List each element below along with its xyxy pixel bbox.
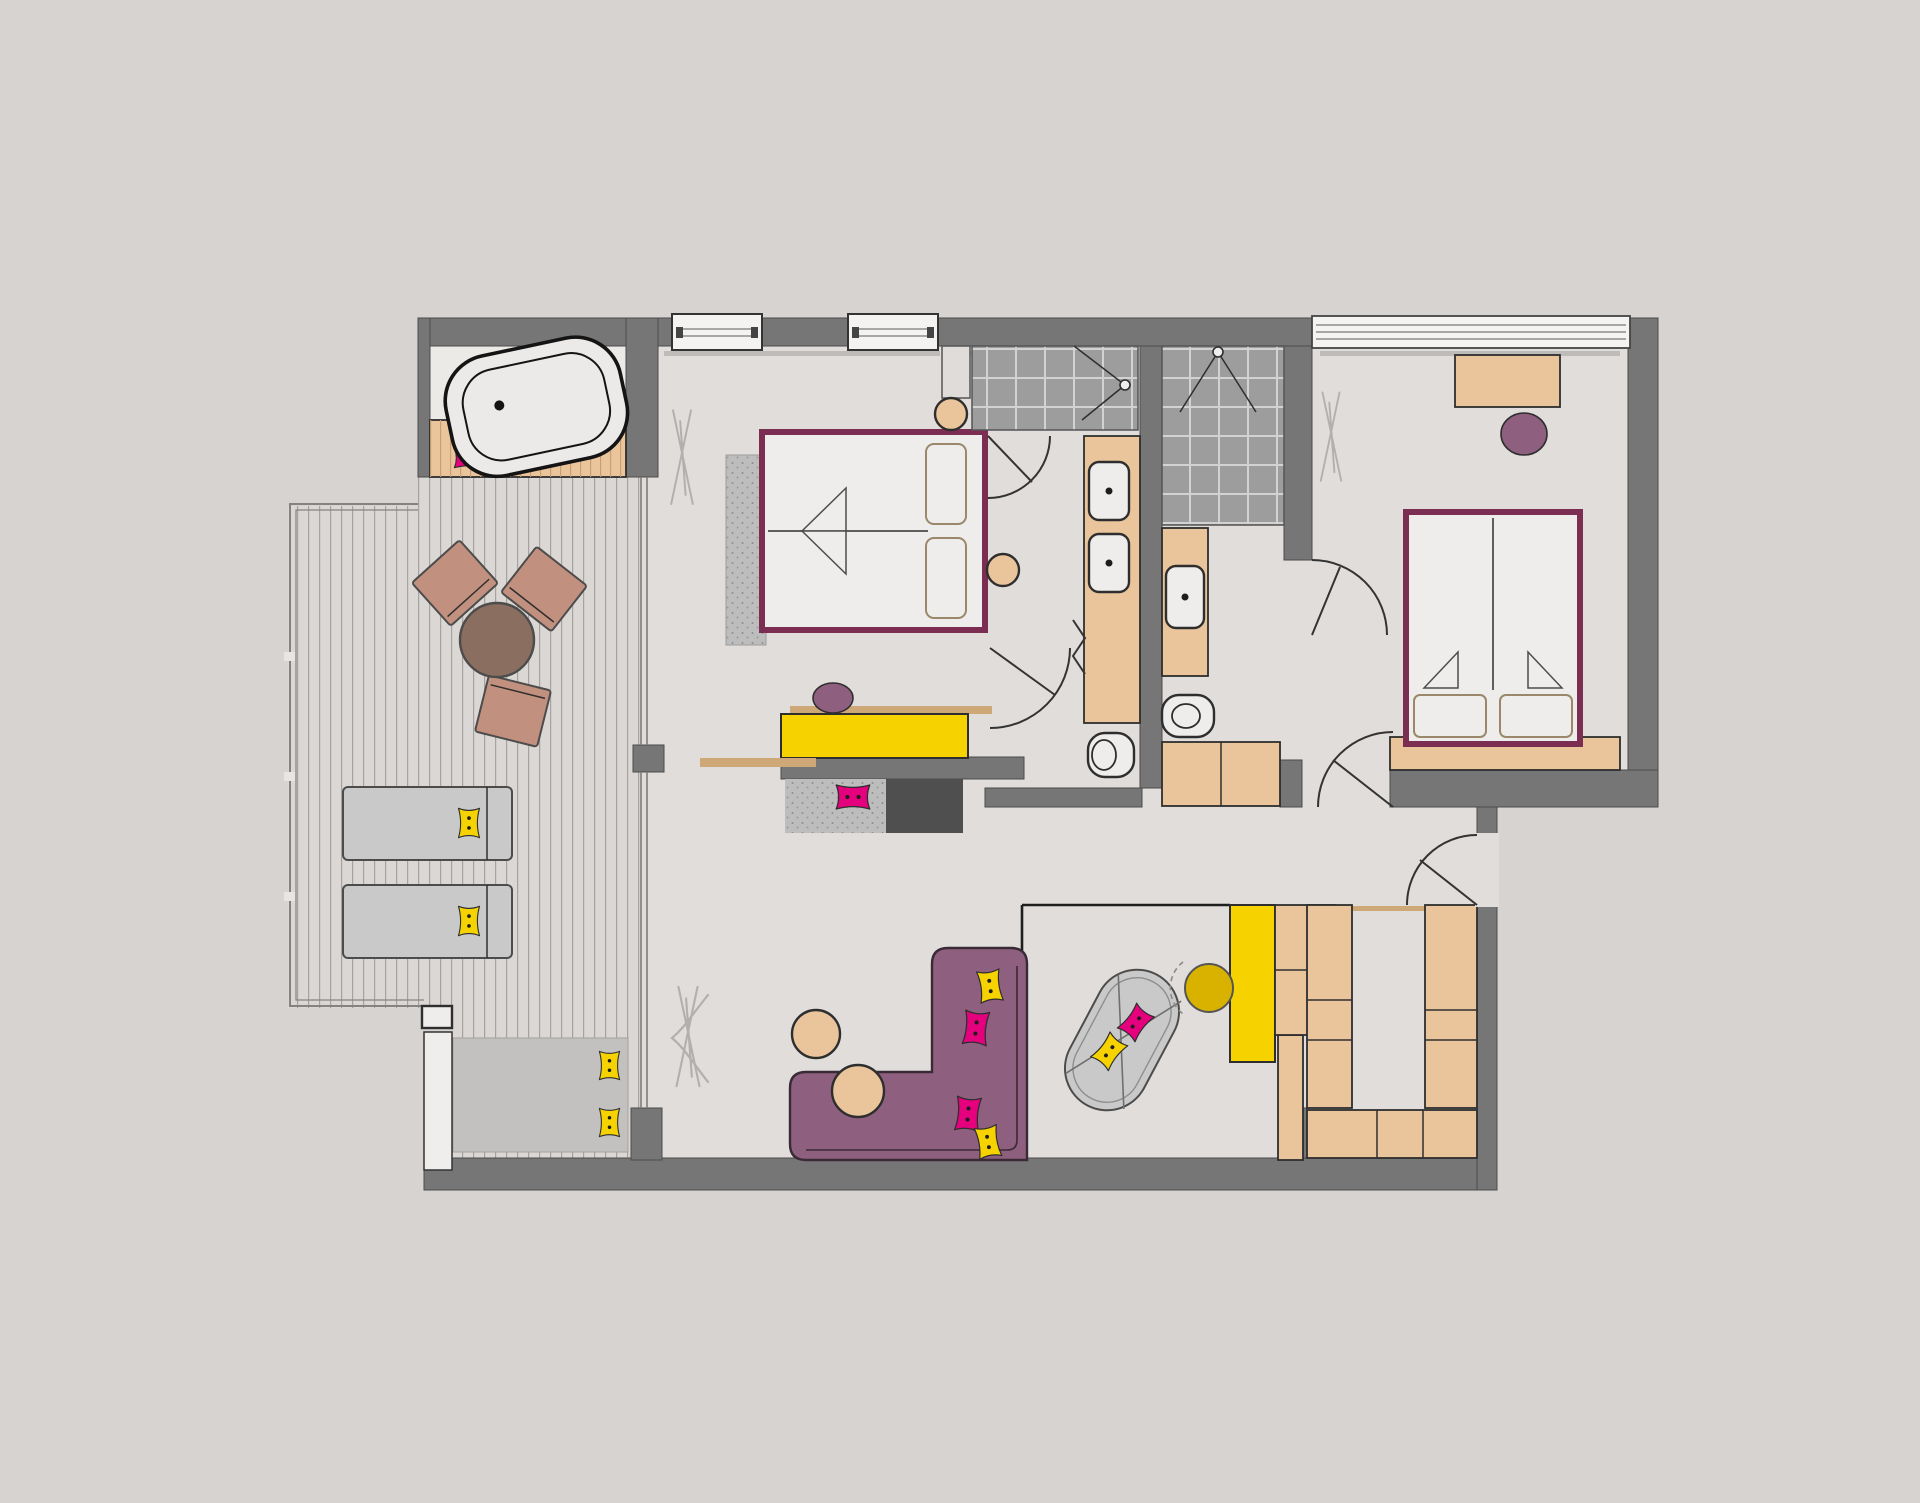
toilet-1 bbox=[1088, 733, 1134, 777]
wall-cabinet bbox=[942, 346, 970, 398]
desk-chair bbox=[1185, 964, 1233, 1012]
faucet-dot bbox=[1106, 560, 1113, 567]
wall-entry-right bbox=[1477, 905, 1497, 1190]
bistro-table bbox=[460, 603, 534, 677]
sofa-cushion-pink bbox=[962, 1010, 989, 1046]
rug-cushion-pink bbox=[836, 785, 870, 809]
window-1 bbox=[672, 314, 762, 350]
railing-post bbox=[284, 772, 295, 781]
glass-pier-upper bbox=[633, 745, 664, 772]
wall-niche-left bbox=[418, 318, 430, 477]
sun-lounger-2 bbox=[343, 885, 512, 958]
yellow-bench bbox=[781, 714, 968, 758]
closet-row bbox=[1307, 1110, 1477, 1158]
entry-threshold bbox=[1475, 833, 1499, 907]
pouf bbox=[832, 1065, 884, 1117]
glass-pier-lower bbox=[631, 1108, 662, 1160]
purple-stool bbox=[813, 683, 853, 713]
wood-board bbox=[700, 758, 816, 767]
desk-console bbox=[1455, 355, 1560, 407]
divider-rug bbox=[785, 779, 886, 833]
side-stool bbox=[987, 554, 1019, 586]
window-2 bbox=[848, 314, 938, 350]
wall-masterbath-bottom bbox=[985, 788, 1142, 807]
faucet-dot bbox=[1106, 488, 1113, 495]
daybed-cushion-yellow bbox=[599, 1051, 619, 1079]
shower-1-tiles bbox=[972, 346, 1138, 430]
bed-pillow bbox=[926, 538, 966, 618]
bed-pillow bbox=[1414, 695, 1486, 737]
toilet-2 bbox=[1162, 695, 1214, 737]
pouf bbox=[792, 1010, 840, 1058]
wall-hall-stub bbox=[1280, 760, 1302, 807]
wall-bottom bbox=[424, 1158, 1497, 1190]
floor-plan-svg: Hotel suite floor plan – top view (no te… bbox=[0, 0, 1920, 1503]
media-unit bbox=[886, 779, 963, 833]
wardrobe-column-left bbox=[1307, 905, 1352, 1108]
twin-bed bbox=[1406, 512, 1580, 744]
bed-pillow bbox=[926, 444, 966, 524]
railing-post bbox=[284, 652, 295, 661]
faucet-dot bbox=[1182, 594, 1189, 601]
wall-entry-top bbox=[1477, 807, 1497, 835]
study-desk bbox=[1230, 905, 1275, 1062]
terrace-planter bbox=[424, 1032, 452, 1170]
shower-1-hinge bbox=[1120, 380, 1130, 390]
lounger-cushion-yellow bbox=[459, 808, 480, 837]
double-bed bbox=[762, 432, 985, 630]
terrace-step bbox=[422, 1006, 452, 1028]
wardrobe-column-right bbox=[1425, 905, 1477, 1108]
railing-post bbox=[284, 892, 295, 901]
bed-pillow bbox=[1500, 695, 1572, 737]
window-band-bedroom2 bbox=[1312, 316, 1630, 348]
wall-bath-divider bbox=[1140, 346, 1162, 788]
floor-plan-stage: Hotel suite floor plan – top view (no te… bbox=[0, 0, 1920, 1503]
wall-bedroom2-bottom bbox=[1390, 770, 1658, 807]
sofa-cushion-pink bbox=[955, 1096, 982, 1132]
desk-stool-purple bbox=[1501, 413, 1547, 455]
side-cabinet bbox=[1278, 1035, 1303, 1160]
wall-divider-stub bbox=[781, 757, 1024, 779]
wall-right bbox=[1628, 318, 1658, 807]
sun-lounger-1 bbox=[343, 787, 512, 860]
side-stool bbox=[935, 398, 967, 430]
exterior-cutout bbox=[1497, 806, 1682, 1170]
shower-2-hinge bbox=[1213, 347, 1223, 357]
shower-2-tiles bbox=[1162, 346, 1284, 525]
curtain-track-master bbox=[664, 351, 940, 356]
lounger-cushion-yellow bbox=[459, 906, 480, 935]
daybed-cushion-yellow bbox=[599, 1108, 619, 1136]
wall-bath2-right bbox=[1284, 346, 1312, 560]
wall-niche-right bbox=[626, 318, 658, 477]
